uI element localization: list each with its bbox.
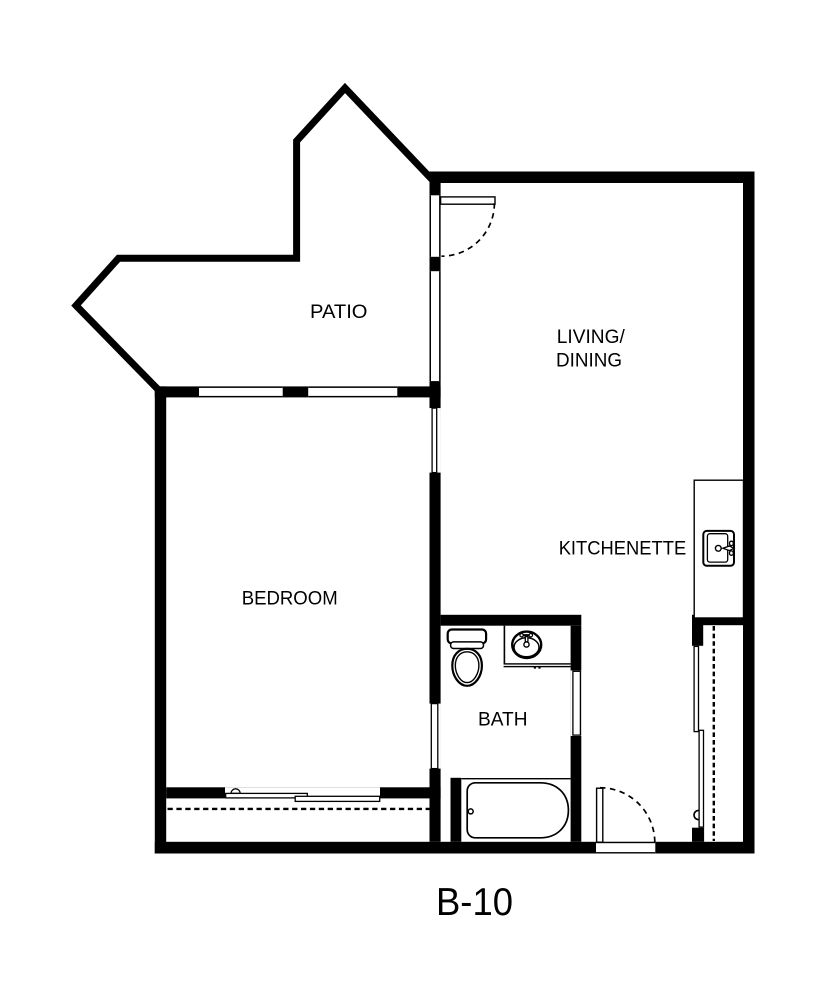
svg-text:KITCHENETTE: KITCHENETTE — [559, 538, 687, 559]
svg-text:LIVING/: LIVING/ — [557, 327, 626, 348]
svg-text:BEDROOM: BEDROOM — [242, 589, 338, 610]
svg-text:BATH: BATH — [478, 710, 528, 731]
svg-text:PATIO: PATIO — [310, 302, 368, 323]
svg-text:DINING: DINING — [556, 350, 622, 371]
svg-text:B-10: B-10 — [436, 881, 513, 924]
